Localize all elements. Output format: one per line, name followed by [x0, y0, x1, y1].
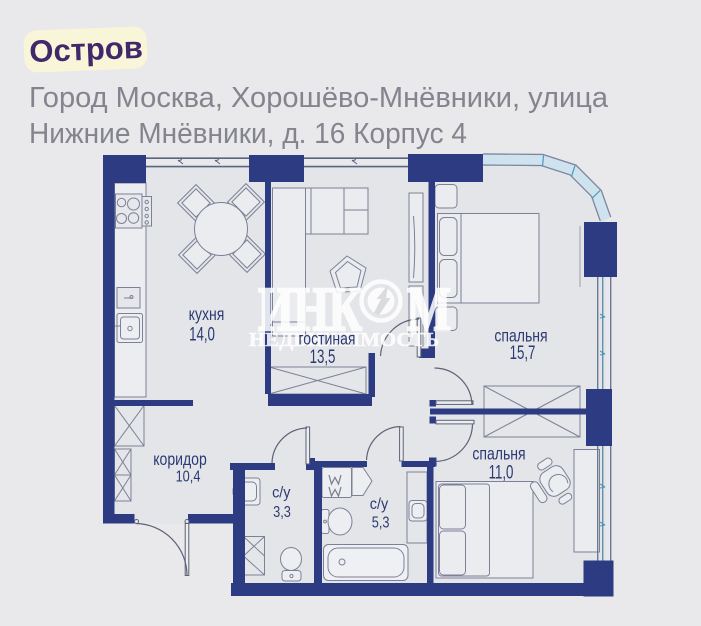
- svg-text:коридор: коридор: [153, 449, 207, 469]
- svg-text:10,4: 10,4: [176, 468, 201, 486]
- svg-text:11,0: 11,0: [489, 462, 514, 483]
- svg-text:с/у: с/у: [272, 484, 291, 502]
- svg-text:с/у: с/у: [370, 495, 389, 513]
- svg-text:5,3: 5,3: [372, 514, 390, 532]
- svg-text:13,5: 13,5: [310, 347, 336, 368]
- svg-text:3,3: 3,3: [273, 504, 291, 522]
- svg-text:15,7: 15,7: [510, 343, 536, 364]
- svg-text:Нижние Мнёвники, д. 16 Корпус: Нижние Мнёвники, д. 16 Корпус 4: [29, 118, 467, 150]
- svg-text:кухня: кухня: [189, 304, 225, 324]
- svg-text:спальня: спальня: [472, 444, 525, 464]
- svg-text:14,0: 14,0: [189, 324, 215, 345]
- svg-text:Город Москва, Хорошёво-Мнёвник: Город Москва, Хорошёво-Мнёвники, улица: [29, 82, 609, 114]
- svg-text:Остров: Остров: [29, 30, 144, 69]
